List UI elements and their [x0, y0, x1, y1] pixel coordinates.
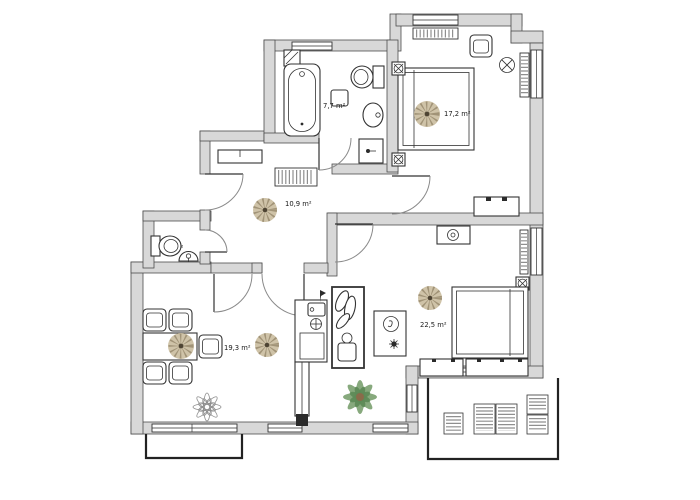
window-living-right: [373, 424, 408, 432]
room-label-hallway: 10,9 m²: [285, 200, 312, 208]
ceiling-fan-icon: [253, 198, 277, 222]
wc-door: [205, 230, 227, 252]
electrical-marker-icon: [392, 153, 405, 166]
wc-sink-icon: [179, 252, 198, 263]
floor-plan-drawing: 7,7 m²: [0, 0, 700, 500]
terrace-table-large: [474, 404, 517, 434]
toilet-icon: [351, 66, 384, 88]
kitchen-counter: [295, 300, 327, 362]
ceiling-fan-icon: [168, 333, 194, 359]
window-right-lower: [531, 228, 542, 275]
balcony: [146, 434, 242, 458]
armchair-bedroom-top: [470, 35, 492, 57]
room-label-bathroom: 7,7 m²: [323, 102, 346, 110]
radiator-right-upper: [520, 53, 529, 97]
bathtub-icon: [284, 64, 320, 136]
ceiling-fan-icon: [414, 101, 440, 127]
dresser-bedroom-top: [474, 197, 519, 216]
bedroom-top-door: [392, 176, 430, 214]
wardrobe-bedroom-bottom: [332, 287, 364, 368]
terrace-table-small: [444, 413, 463, 434]
ceiling-fan-icon: [418, 286, 442, 310]
entry-door: [205, 174, 243, 210]
ceiling-lamp-icon: [500, 58, 515, 73]
electrical-marker-icon: [392, 62, 405, 75]
dining-chair: [143, 309, 166, 331]
radiator-right-lower: [520, 230, 528, 274]
room-bathroom: 7,7 m²: [284, 50, 384, 163]
terrace-lounger: [527, 395, 548, 434]
room-label-bedroom-bottom: 22,5 m²: [420, 321, 447, 329]
plant-palm-icon: [343, 380, 377, 414]
window-bedroom-top: [413, 15, 458, 25]
room-bedroom-top: 17,2 m²: [392, 28, 529, 216]
room-label-bedroom-top: 17,2 m²: [444, 110, 471, 118]
bedroom-bottom-door: [335, 224, 373, 262]
dining-chair: [169, 362, 192, 384]
sideboard-hallway: [218, 150, 262, 163]
dining-chair: [143, 362, 166, 384]
radiator-bedroom-top: [413, 28, 458, 39]
room-label-living: 19,3 m²: [224, 344, 251, 352]
wc-toilet-icon: [151, 236, 181, 256]
window-bathroom: [292, 42, 332, 50]
window-right-upper: [531, 50, 542, 98]
bathroom-sink-icon: [363, 103, 383, 127]
room-living: 19,3 m²: [143, 309, 251, 421]
plant-sketch-icon: [193, 393, 221, 421]
window-kitchen-nook: [407, 385, 417, 412]
terrace: [428, 378, 558, 459]
living-door-left: [214, 274, 252, 312]
bed-bedroom-bottom: [452, 287, 528, 358]
bathroom-cabinet-icon: [359, 139, 383, 163]
armchair-living: [199, 335, 222, 358]
bench-drawers: [420, 359, 528, 376]
dining-chair: [169, 309, 192, 331]
desk-bedroom-bottom: [374, 311, 406, 356]
dresser-bedroom-bottom: [437, 226, 470, 244]
ceiling-fan-icon: [255, 333, 279, 357]
floor-plan-page: 7,7 m²: [0, 0, 700, 500]
window-living-left: [152, 424, 237, 432]
kitchen-tall-cabinet: [295, 362, 309, 426]
radiator-hallway: [275, 168, 317, 186]
room-wc: 1,6 m²: [151, 236, 198, 262]
